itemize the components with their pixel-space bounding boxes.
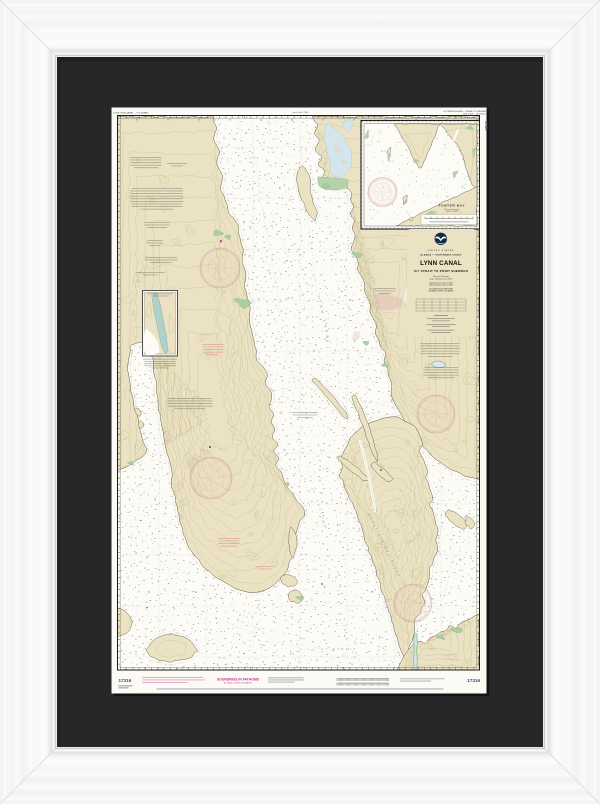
svg-text:17316 LYNN CANAL — ICY STRAIT: 17316 LYNN CANAL — ICY STRAIT xyxy=(113,112,149,115)
svg-text:17316: 17316 xyxy=(484,121,488,131)
svg-text:UNITED STATES: UNITED STATES xyxy=(428,249,455,252)
svg-text:NOS 17316 — 23rd Edition: NOS 17316 — 23rd Edition xyxy=(463,112,486,115)
svg-text:(Joins Chart 17300): (Joins Chart 17300) xyxy=(292,111,309,114)
svg-text:ICY STRAIT: ICY STRAIT xyxy=(318,647,357,651)
svg-text:LYNN CANAL: LYNN CANAL xyxy=(420,260,462,267)
svg-text:17316: 17316 xyxy=(467,678,480,683)
svg-text:FUNTER BAY: FUNTER BAY xyxy=(439,203,466,207)
svg-text:AT MEAN LOWER LOW WATER: AT MEAN LOWER LOW WATER xyxy=(429,290,454,293)
svg-text:SOUTHEAST ALASKA — JUNEAU TO S: SOUTHEAST ALASKA — JUNEAU TO SKAGWAY xyxy=(443,110,486,113)
svg-text:17316: 17316 xyxy=(119,678,132,683)
svg-text:ICY STRAIT TO POINT SHERMAN: ICY STRAIT TO POINT SHERMAN xyxy=(414,269,468,273)
svg-text:Scale 1:20,000: Scale 1:20,000 xyxy=(446,211,457,213)
svg-text:ALASKA — SOUTHEAST COAST: ALASKA — SOUTHEAST COAST xyxy=(420,254,462,257)
svg-text:SOUNDINGS IN FATHOMS: SOUNDINGS IN FATHOMS xyxy=(217,677,260,681)
svg-text:AT MEAN LOWER LOW WATER: AT MEAN LOWER LOW WATER xyxy=(224,682,252,685)
svg-text:Scale 1:80,000 at Lat. 58°15′: Scale 1:80,000 at Lat. 58°15′ xyxy=(429,278,453,281)
svg-text:(World Geodetic System 1984): (World Geodetic System 1984) xyxy=(429,284,452,287)
